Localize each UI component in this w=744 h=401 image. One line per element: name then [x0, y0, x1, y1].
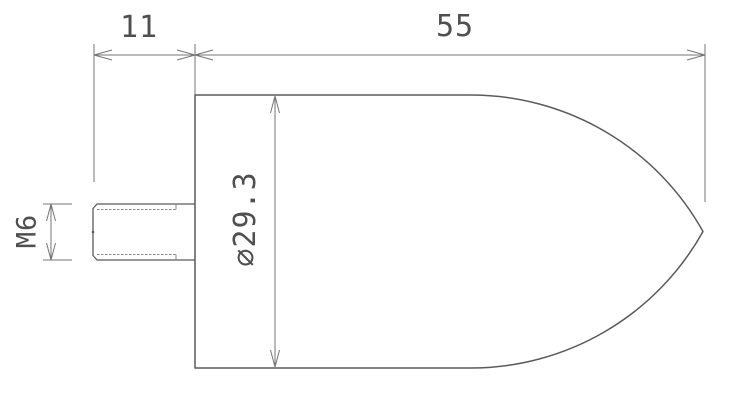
diameter-dimension [271, 96, 280, 367]
m6-dimension [43, 204, 72, 260]
dimension-label-body-length: 55 [436, 12, 474, 42]
dimension-label-stud-length: 11 [120, 13, 158, 43]
dimension-label-diameter: ⌀29.3 [231, 171, 261, 266]
stud-center-point [92, 231, 95, 234]
extension-lines [94, 44, 705, 202]
drawing-sheet: 11 55 M6 ⌀29.3 [0, 0, 744, 401]
part-drawing-linework [0, 0, 744, 401]
dimension-label-thread-spec: M6 [14, 214, 41, 249]
stud-outline [93, 204, 195, 260]
horizontal-dimension-lines [94, 50, 705, 60]
thread-minor-diameter-lines [97, 204, 176, 260]
part-body-outline [195, 95, 703, 368]
threaded-stud [92, 204, 195, 260]
